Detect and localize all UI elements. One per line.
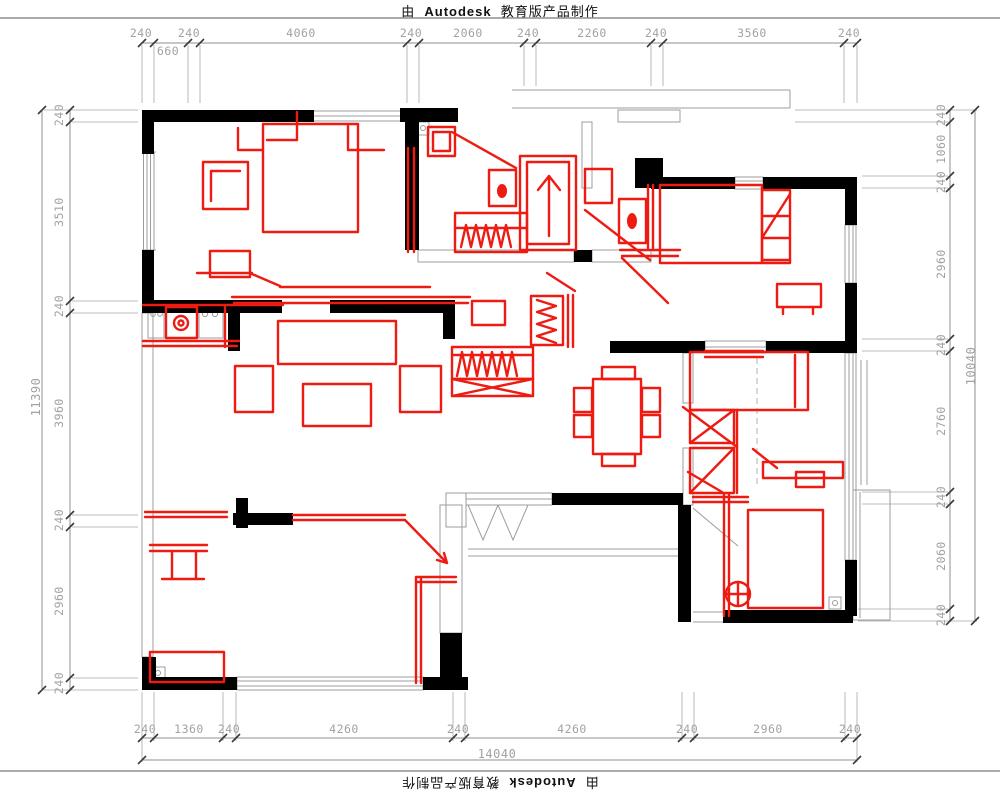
dim-label: 3560 [737,26,767,40]
bottomleft-room-furniture [145,512,456,683]
dim-label: 240 [517,26,539,40]
dim-label: 240 [52,672,66,694]
dim-label: 240 [676,722,698,736]
dim-label: 240 [178,26,200,40]
hall-closet [452,273,575,396]
bathroom1-fixtures [408,127,576,252]
dim-label: 240 [839,722,861,736]
dim-total-height-left: 11390 [29,378,43,417]
dim-sub-label: 660 [157,44,179,58]
dim-label: 240 [934,604,948,626]
dim-label: 240 [52,295,66,317]
dim-label: 240 [934,334,948,356]
dim-label: 4260 [329,722,359,736]
dim-label: 240 [645,26,667,40]
dim-label: 2960 [52,586,66,616]
dim-label: 3510 [52,197,66,227]
dim-label: 240 [400,26,422,40]
extension-lines [44,45,977,762]
tick-marks [38,39,979,764]
dim-label: 240 [218,722,240,736]
dim-label: 240 [52,104,66,126]
dim-label: 3960 [52,398,66,428]
dim-label: 240 [934,104,948,126]
dim-label: 2760 [934,406,948,436]
dim-total-height-right: 10040 [964,347,978,386]
dim-label: 2060 [934,541,948,571]
dim-label: 240 [52,509,66,531]
dim-label: 240 [134,722,156,736]
dim-label: 240 [130,26,152,40]
dim-label: 4060 [286,26,316,40]
dim-label: 2960 [934,249,948,279]
dim-label: 240 [838,26,860,40]
dim-label: 4260 [557,722,587,736]
dim-label: 240 [934,171,948,193]
dim-label: 1060 [934,134,948,164]
floorplan-drawing [0,0,1000,795]
dim-label: 2260 [577,26,607,40]
bedroom2-furniture [683,352,843,493]
furniture-red [143,112,843,683]
living-room-furniture [235,321,441,426]
dim-label: 240 [447,722,469,736]
dim-label: 240 [934,486,948,508]
dim-label: 2060 [453,26,483,40]
dim-label: 2960 [753,722,783,736]
dim-label: 1360 [174,722,204,736]
dim-total-width: 14040 [478,747,517,761]
cad-floorplan-sheet: 由 Autodesk 教育版产品制作 由 Autodesk 教育版产品制作 [0,0,1000,795]
